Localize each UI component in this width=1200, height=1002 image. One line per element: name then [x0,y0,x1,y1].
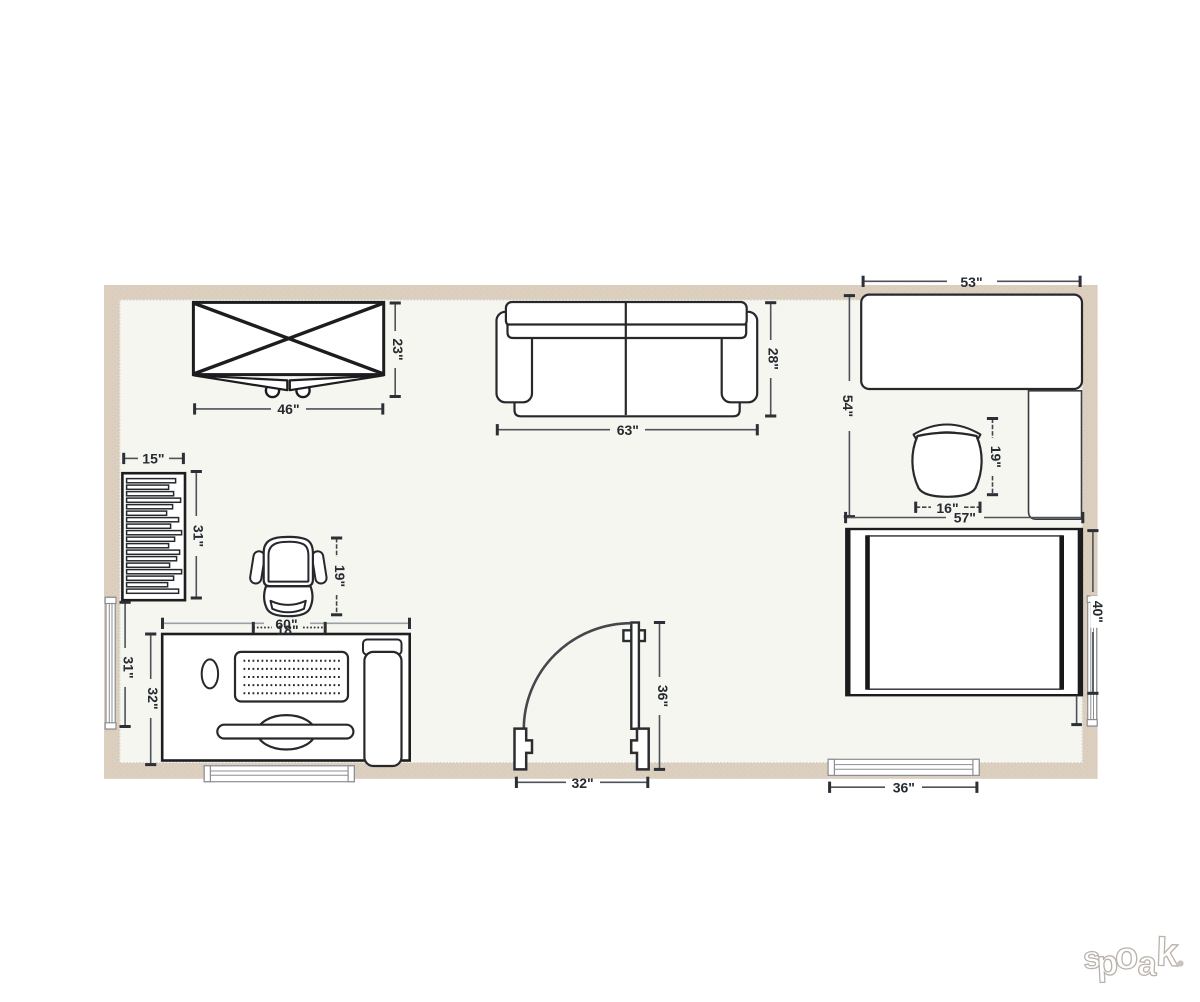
svg-text:63": 63" [617,422,639,438]
svg-text:31": 31" [121,656,137,678]
svg-text:15": 15" [142,450,164,466]
svg-text:54": 54" [840,395,856,417]
svg-text:18": 18" [276,622,298,638]
svg-text:31": 31" [191,525,207,547]
svg-text:k: k [1155,930,1180,975]
svg-text:36": 36" [655,685,671,707]
svg-text:36": 36" [893,779,915,795]
svg-text:53": 53" [960,274,982,290]
svg-text:19": 19" [332,565,348,587]
svg-text:o: o [1115,936,1138,978]
svg-text:32": 32" [571,775,593,791]
svg-text:32": 32" [145,687,161,709]
svg-text:40": 40" [1090,601,1106,623]
svg-text:23": 23" [390,338,406,360]
svg-text:19": 19" [988,446,1004,468]
svg-text:57": 57" [954,509,976,525]
svg-text:28": 28" [766,348,782,370]
svg-text:46": 46" [277,401,299,417]
